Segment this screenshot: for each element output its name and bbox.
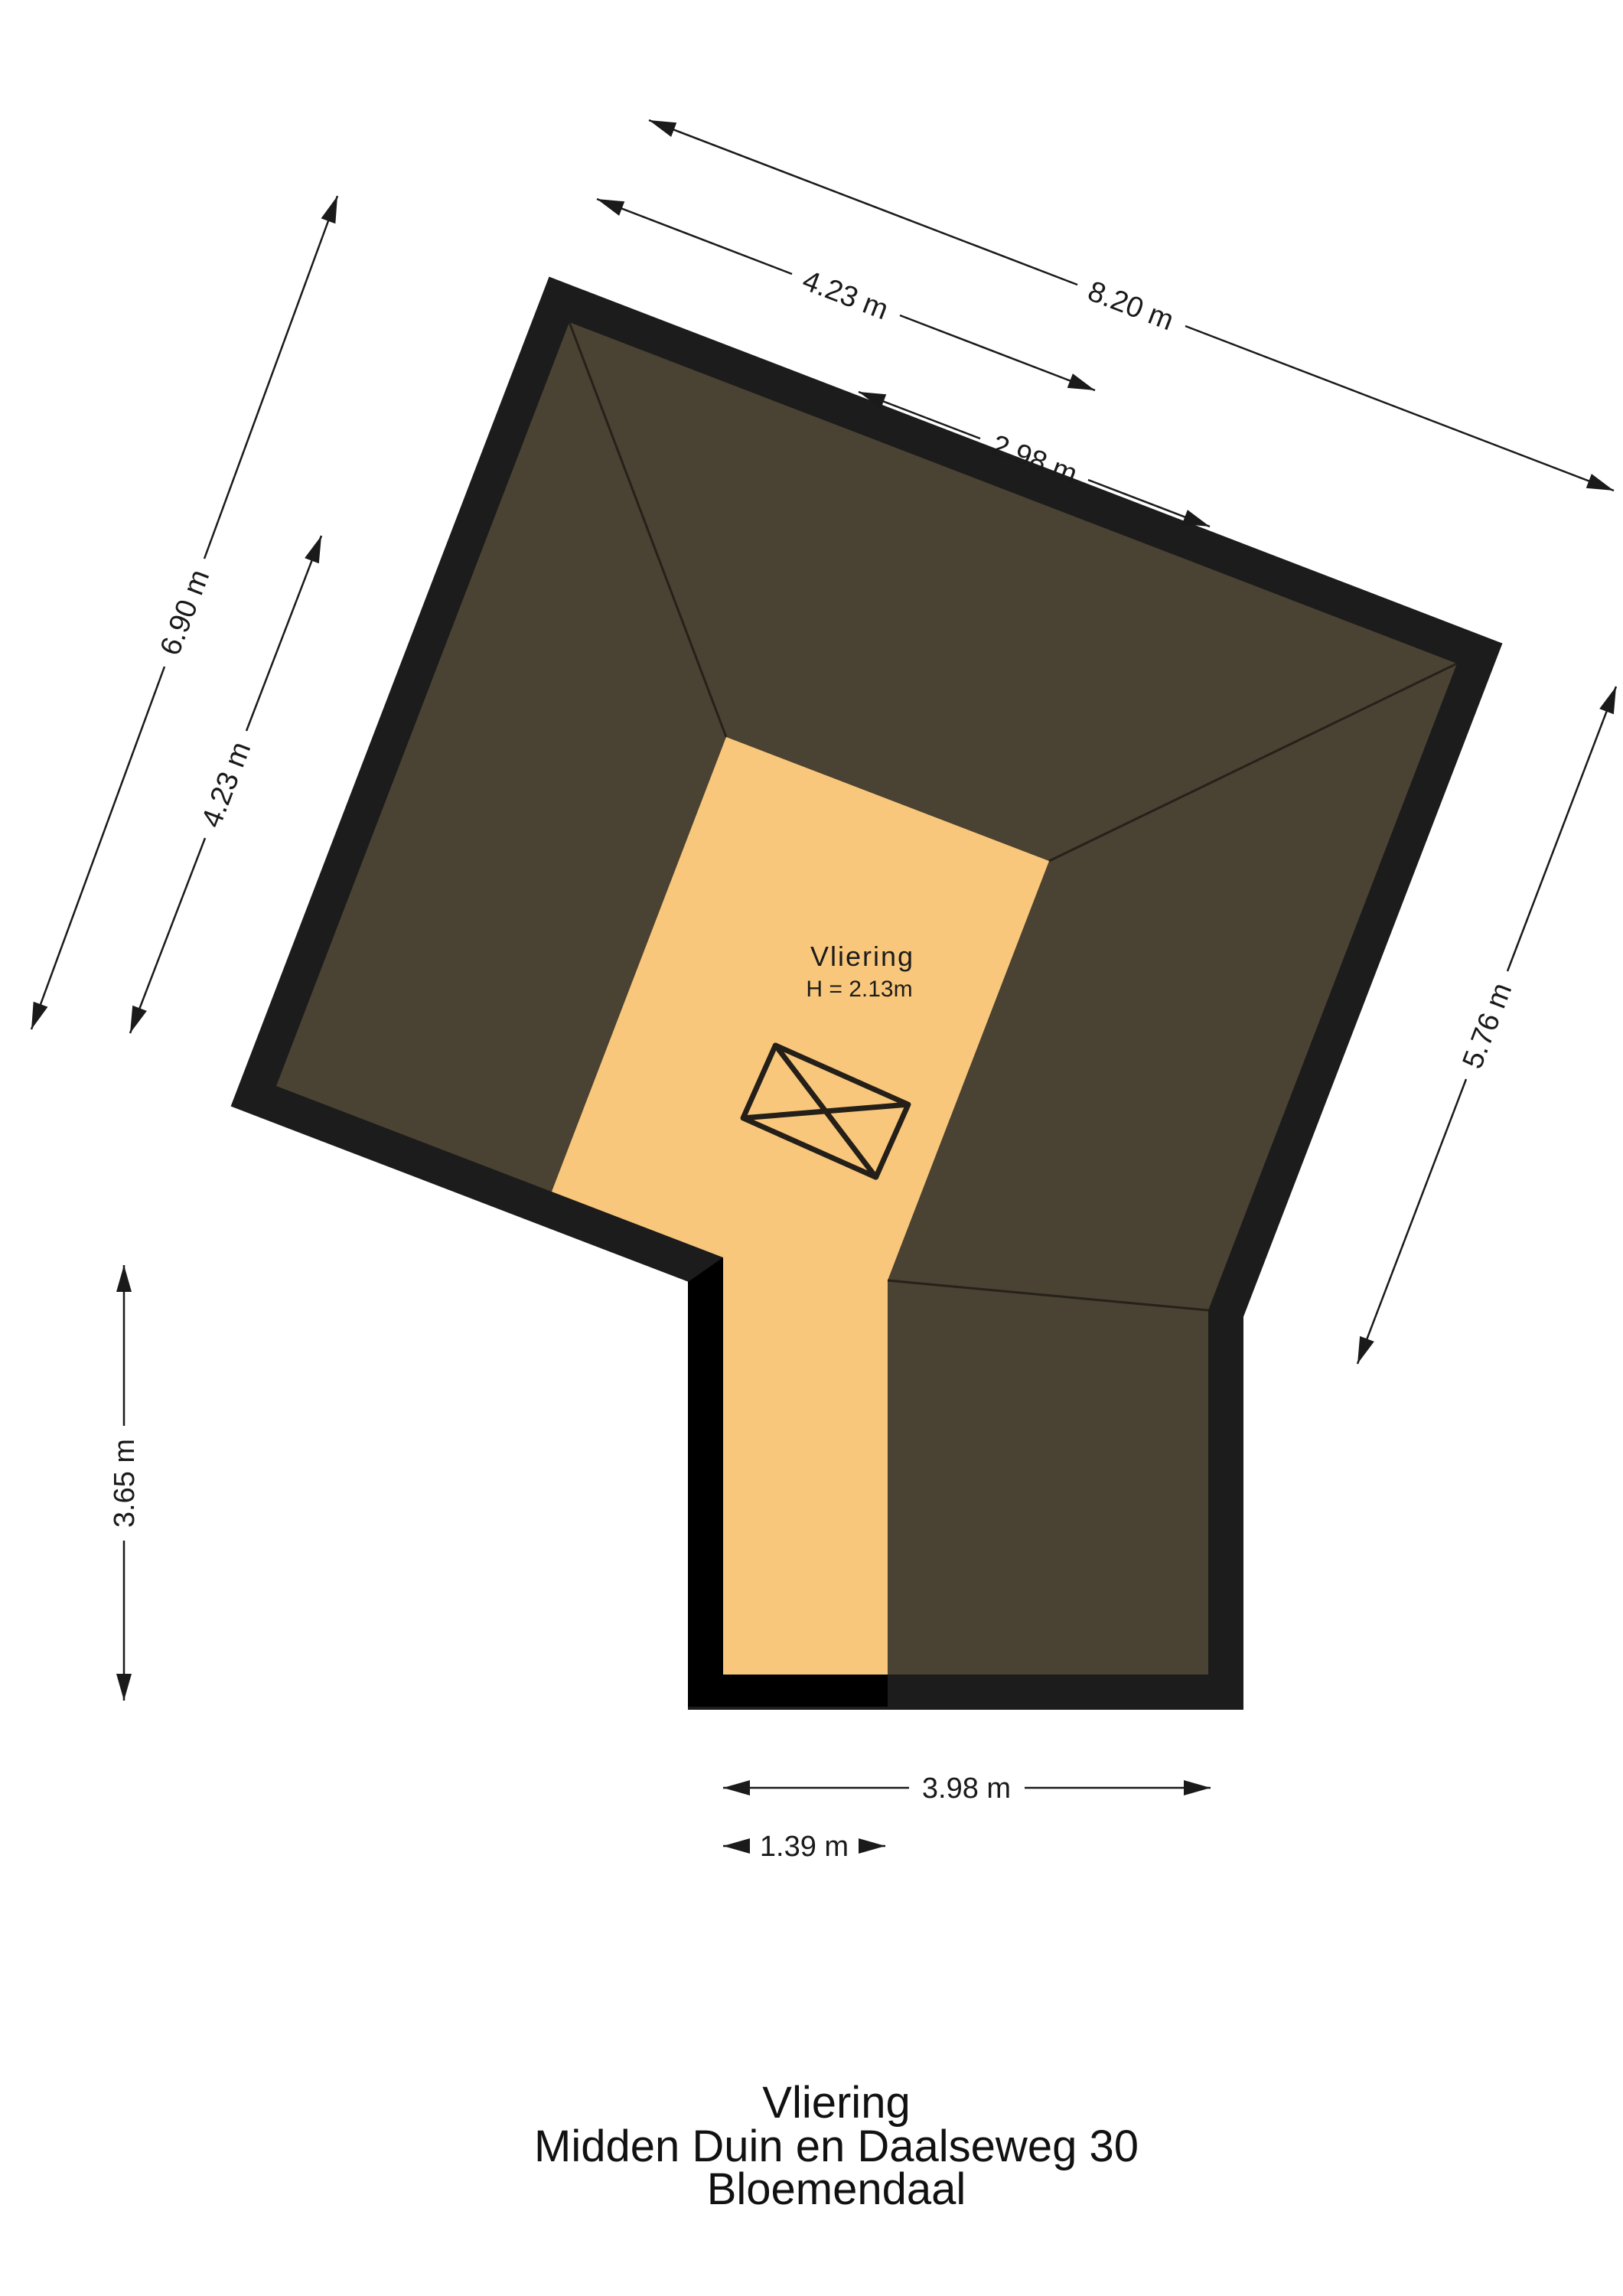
dimension-label-top-outer: 8.20 m [1084, 276, 1178, 338]
dimension-label-top-left-segment: 4.23 m [798, 265, 893, 327]
floorplan-canvas: Vliering H = 2.13m 8.20 m 4.23 m 2.98 m … [0, 0, 1623, 2296]
dimension-label-right-side: 5.76 m [1457, 979, 1519, 1074]
title-room: Vliering [762, 2078, 910, 2128]
title-block: Vliering Midden Duin en Daalseweg 30 Blo… [534, 2078, 1139, 2214]
dimension-extension-bottom: 3.98 m [723, 1773, 1211, 1805]
dimension-corridor-bottom: 1.39 m [723, 1831, 885, 1863]
dimension-label-extension-bottom: 3.98 m [922, 1773, 1011, 1805]
dimension-label-corridor-bottom: 1.39 m [760, 1831, 849, 1863]
dimension-extension-height: 3.65 m [109, 1265, 141, 1701]
dimension-label-left-inner: 4.23 m [196, 738, 258, 833]
floorplan-page: Vliering H = 2.13m 8.20 m 4.23 m 2.98 m … [0, 0, 1623, 2296]
dimension-label-left-outer: 6.90 m [155, 566, 217, 660]
title-city: Bloemendaal [707, 2164, 966, 2214]
room-height-label: H = 2.13m [806, 977, 912, 1002]
dimension-label-extension-height: 3.65 m [109, 1439, 141, 1528]
room-name-label: Vliering [810, 941, 914, 972]
